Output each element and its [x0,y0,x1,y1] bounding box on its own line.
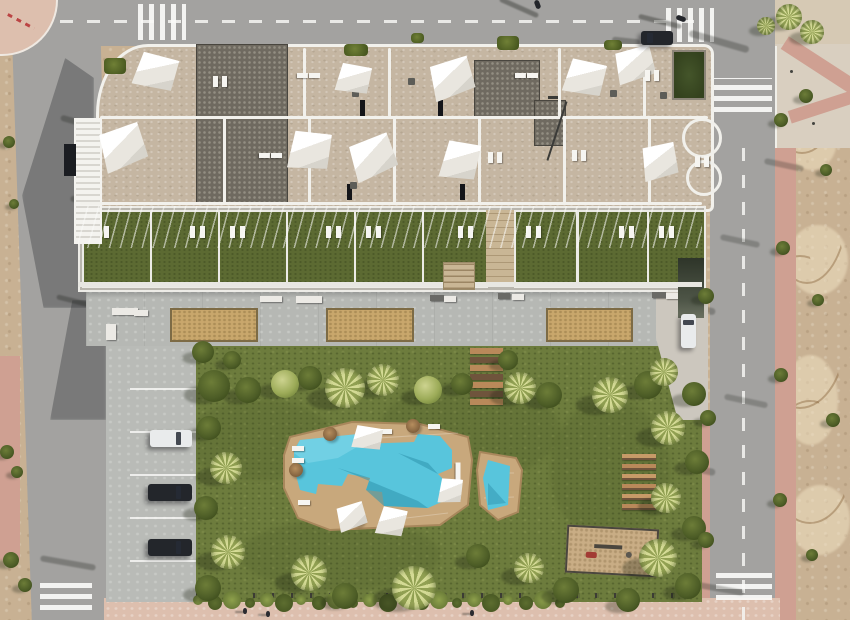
roof-planter [604,40,622,50]
roof-parapet [100,116,708,119]
plaza-curb [775,46,777,148]
pool-lounger [298,500,310,505]
pedestrian [243,608,247,614]
garden-tree [774,113,788,127]
terrace-furniture [610,90,617,97]
roof-stair-opening [460,184,465,200]
garden-tree [616,588,640,612]
garden-tree [812,294,824,306]
wooden-sun-deck [622,474,656,480]
palm-tree [639,539,677,577]
sun-lounger [271,153,282,158]
roof-parapet [303,48,306,118]
roof-stair-opening [438,100,443,116]
garden-stair-plank [470,382,503,388]
sun-lounger [259,153,270,158]
garden-tree [826,413,840,427]
roof-parapet [388,48,391,118]
zebra-crosswalk [138,4,186,40]
garden-tree [773,493,787,507]
garden-tree [18,578,32,592]
parking-line [130,474,196,476]
sun-lounger [515,73,526,78]
windshield [647,33,653,43]
windshield [176,432,181,445]
roof-courtyard-garden [672,50,706,100]
palm-tree [776,4,802,30]
hedge-bush [519,596,533,610]
garden-tree [298,366,322,390]
garden-tree [466,544,490,568]
bollard [790,70,793,73]
parking-line [130,560,196,562]
garden-tree [451,373,473,395]
garden-tree [197,416,221,440]
bench [106,324,116,340]
wooden-sun-deck [622,464,656,470]
garden-tree [675,573,701,599]
sun-lounger [213,76,218,87]
parked-car [150,430,192,447]
garden-tree [223,351,241,369]
palm-tree [757,17,775,35]
bench [666,293,678,299]
bench [444,296,456,302]
palm-tree [210,452,242,484]
zebra-crosswalk [40,577,92,610]
garden-tree [195,575,221,601]
garden-tree [806,549,818,561]
aerial-scene [0,0,850,620]
palm-tree [325,368,365,408]
zebra-crosswalk [714,78,772,112]
garden-tree [498,350,518,370]
garden-tree [536,382,562,408]
sun-lounger [497,152,502,163]
right-outer-sidewalk [775,148,796,620]
bench [652,292,666,298]
palm-tree [367,364,399,396]
sun-lounger [572,150,577,161]
roof-parapet [223,118,226,204]
garden-tree [235,377,261,403]
roof-planter [344,44,368,56]
street-lamp-head [548,96,558,99]
pergola-beams [78,206,702,248]
wicker-parasol [289,463,303,477]
sun-lounger [297,73,308,78]
hedge-bush [467,593,481,607]
garden-tree [700,410,716,426]
garden-tree [9,199,19,209]
pool-lounger [292,446,304,451]
east-curved-balcony [682,118,722,158]
play-structure [594,544,622,549]
wooden-sun-deck [622,484,656,490]
garden-tree [553,577,579,603]
bollard [812,122,815,125]
garden-tree [774,368,788,382]
bench [134,310,148,316]
garden-tree [194,496,218,520]
hedge-bush [260,593,274,607]
garden-tree [198,370,230,402]
terrace-furniture [350,182,357,189]
hedge-bush [452,598,462,608]
garage-ramp [678,258,704,318]
pedestrian [266,611,270,617]
pool-lounger [456,463,461,475]
petanque-court [170,308,258,342]
sun-lounger [695,156,700,167]
roof-parapet [558,48,561,118]
car-on-ramp [681,314,696,348]
promenade-steps [443,262,475,290]
play-item-red [586,552,597,559]
garden-tree [192,341,214,363]
bench [430,295,444,301]
palm-tree [650,358,678,386]
garden-tree [11,466,23,478]
palm-tree [651,483,681,513]
car-on-road [641,31,673,45]
palm-tree [800,20,824,44]
windshield [176,486,181,499]
sun-lounger [654,70,659,81]
palm-tree [392,566,436,610]
palm-tree [211,535,245,569]
garden-stair-plank [470,374,503,380]
roof-planter [497,36,519,50]
roof-parapet [80,202,702,205]
windshield [176,541,181,554]
palm-tree [651,411,685,445]
hedge-bush [482,594,500,612]
garden-tree [698,288,714,304]
bench [512,294,524,300]
bench [260,296,282,302]
west-entrance-recess [64,144,76,176]
bench [296,296,322,303]
play-item [626,552,632,558]
terrace-furniture [408,78,415,85]
terrace-front-wall [78,282,702,287]
roof-gravel-patch [474,60,540,118]
roof-stair-opening [360,100,365,116]
sun-lounger [704,156,709,167]
terrace-furniture [660,92,667,99]
sun-lounger [488,152,493,163]
roof-gravel-patch [196,44,288,204]
pool-lounger [428,424,440,429]
wicker-parasol [323,427,337,441]
wicker-parasol [406,419,420,433]
sun-lounger [222,76,227,87]
garden-tree [3,552,19,568]
roof-planter [411,33,424,43]
roof-parapet [478,118,481,204]
roof-gravel-patch [534,100,566,146]
road-center-dashes [742,134,745,620]
garden-tree [698,532,714,548]
garden-tree [332,583,358,609]
sun-lounger [581,150,586,161]
garden-tree [271,370,299,398]
palm-tree [504,372,536,404]
garden-tree [0,445,14,459]
garden-tree [776,241,790,255]
roof-planter [104,58,126,74]
windshield [683,320,694,325]
palm-tree [291,555,327,591]
hedge-bush [245,598,255,608]
garden-tree [799,89,813,103]
petanque-court [326,308,414,342]
garden-stair-plank [470,348,503,354]
zebra-crosswalk [716,568,772,600]
garden-tree [414,376,442,404]
sun-lounger [527,73,538,78]
pedestrian [470,610,474,616]
sun-lounger [645,70,650,81]
bench [498,293,510,299]
garden-tree [682,382,706,406]
palm-tree [514,553,544,583]
petanque-court [546,308,633,342]
garden-tree [820,164,832,176]
parked-car [148,484,192,501]
palm-tree [592,377,628,413]
wooden-sun-deck [622,454,656,460]
garden-tree [3,136,15,148]
roof-parapet [563,118,566,204]
parked-car [148,539,192,556]
garden-tree [685,450,709,474]
sun-lounger [309,73,320,78]
